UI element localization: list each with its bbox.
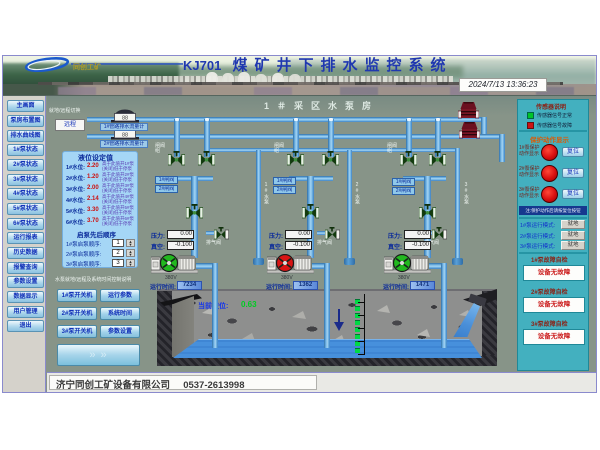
svg-text:88: 88	[122, 116, 128, 122]
svg-text:88: 88	[122, 133, 128, 139]
svg-text:同创工矿: 同创工矿	[73, 62, 101, 71]
